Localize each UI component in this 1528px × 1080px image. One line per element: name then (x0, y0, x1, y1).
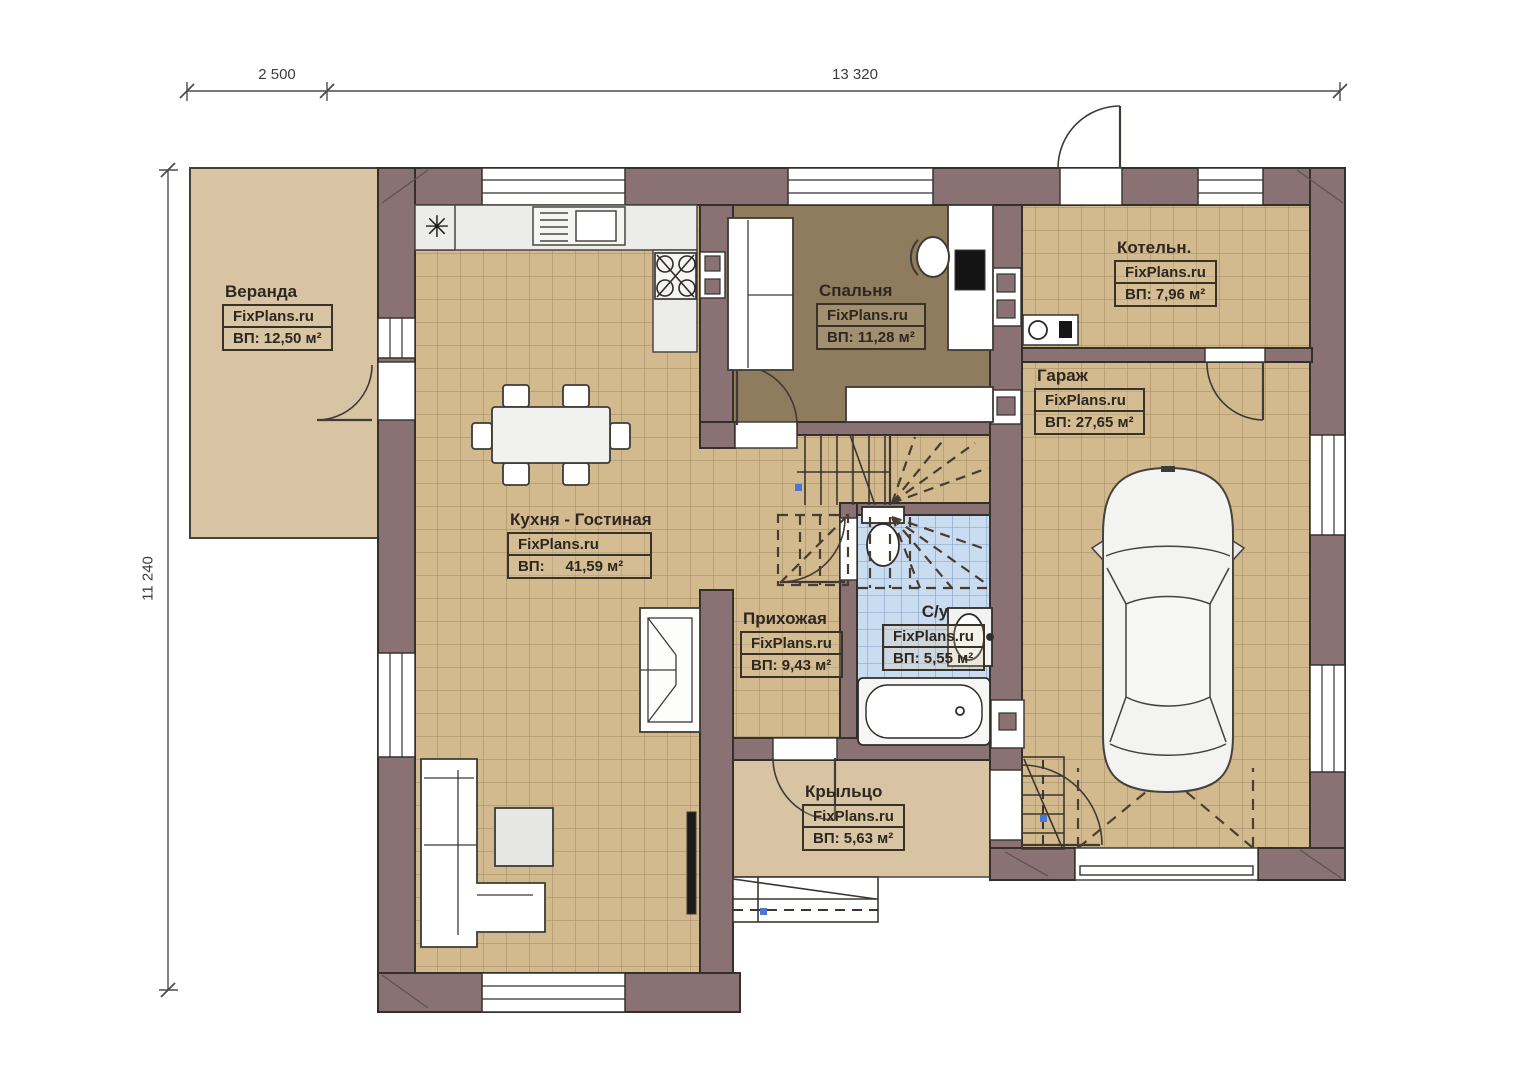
vent-bathroom-wall (991, 700, 1024, 748)
room-label-kitchen-living: Кухня - Гостиная FixPlans.ru ВП: 41,59 м… (507, 510, 652, 579)
brand-watermark: FixPlans.ru (1116, 262, 1215, 284)
dimension-left: 11 240 (140, 549, 157, 609)
chair (610, 423, 630, 449)
bedroom-cabinet (846, 387, 993, 422)
fireplace (640, 608, 700, 732)
window-boiler-top (1198, 168, 1263, 205)
wall-left (378, 168, 415, 1012)
room-name: С/у (919, 602, 948, 622)
veranda-floor (190, 168, 378, 538)
window-kitchen-top (482, 168, 625, 205)
room-label-porch: Крыльцо FixPlans.ru ВП: 5,63 м² (802, 782, 905, 851)
stair-start-dot (795, 484, 802, 491)
room-name: Котельн. (1114, 238, 1217, 258)
room-name: Гараж (1034, 366, 1145, 386)
window-garage-right-lower (1310, 665, 1345, 772)
room-area: ВП: 7,96 м² (1116, 284, 1215, 305)
room-area: ВП: 5,63 м² (804, 828, 903, 849)
room-label-boiler: Котельн. FixPlans.ru ВП: 7,96 м² (1114, 238, 1217, 307)
dining-table (492, 407, 610, 463)
wall-boiler-garage (1022, 348, 1312, 362)
dimension-top-right: 13 320 (810, 66, 900, 83)
room-area: ВП: 9,43 м² (742, 655, 841, 676)
floor-plan-drawing (0, 0, 1528, 1080)
room-label-hallway: Прихожая FixPlans.ru ВП: 9,43 м² (740, 609, 843, 678)
boiler-unit (1023, 315, 1078, 345)
room-area: ВП: 12,50 м² (224, 328, 331, 349)
wall-bedroom-bottom-left (700, 422, 735, 448)
brand-watermark: FixPlans.ru (1036, 390, 1143, 412)
porch-step-dot (760, 908, 767, 915)
door-boiler-exterior (1058, 106, 1122, 205)
room-area: ВП: 11,28 м² (818, 327, 924, 348)
wall-bedroom-bottom-right (797, 422, 993, 435)
wall-garage-bottom-left (990, 848, 1075, 880)
porch-steps (733, 877, 878, 922)
car-roof (1126, 597, 1210, 707)
room-name: Веранда (222, 282, 333, 302)
room-label-veranda: Веранда FixPlans.ru ВП: 12,50 м² (222, 282, 333, 351)
wall-garage-bottom-right (1258, 848, 1345, 880)
dimension-top-left: 2 500 (225, 66, 329, 83)
fridge-icon: ✳ (418, 206, 456, 248)
window-living-left (378, 653, 415, 757)
chair (563, 463, 589, 485)
wall-living-porch (700, 590, 733, 973)
window-bedroom-top (788, 168, 933, 205)
chair (503, 385, 529, 407)
floor-plan-page: 2 500 13 320 11 240 ✳ Веранда FixPlans.r… (0, 0, 1528, 1080)
stair-landing-floor (797, 435, 990, 505)
room-label-garage: Гараж FixPlans.ru ВП: 27,65 м² (1034, 366, 1145, 435)
dimension-line-left (159, 163, 178, 997)
chair (503, 463, 529, 485)
coffee-table (495, 808, 553, 866)
passage-floor (700, 448, 733, 590)
brand-watermark: FixPlans.ru (224, 306, 331, 328)
garage-step-dot (1040, 815, 1047, 822)
brand-watermark: FixPlans.ru (818, 305, 924, 327)
vent-kitchen-wall (700, 252, 725, 298)
window-living-bottom (482, 973, 625, 1012)
room-name: Прихожая (740, 609, 843, 629)
chair (563, 385, 589, 407)
room-label-bedroom: Спальня FixPlans.ru ВП: 11,28 м² (816, 281, 926, 350)
room-name: Крыльцо (802, 782, 905, 802)
brand-watermark: FixPlans.ru (804, 806, 903, 828)
room-area: ВП: 5,55 м² (884, 648, 983, 669)
tv (687, 812, 696, 914)
dimension-line-top (180, 82, 1347, 101)
bedroom-bed (728, 218, 793, 370)
garage-gate (1075, 848, 1258, 880)
room-area: ВП: 41,59 м² (509, 556, 650, 577)
kitchen-sink (533, 207, 625, 245)
brand-watermark: FixPlans.ru (509, 534, 650, 556)
window-garage-right-upper (1310, 435, 1345, 535)
room-area: ВП: 27,65 м² (1036, 412, 1143, 433)
car (1092, 466, 1244, 792)
window-veranda-wall (378, 318, 415, 358)
bathtub (858, 678, 990, 745)
room-name: Спальня (816, 281, 926, 301)
brand-watermark: FixPlans.ru (884, 626, 983, 648)
room-name: Кухня - Гостиная (507, 510, 652, 530)
car-front-badge (1161, 466, 1175, 472)
room-label-bathroom: С/у FixPlans.ru ВП: 5,55 м² (882, 602, 985, 671)
stove (655, 253, 696, 299)
brand-watermark: FixPlans.ru (742, 633, 841, 655)
chair (472, 423, 492, 449)
